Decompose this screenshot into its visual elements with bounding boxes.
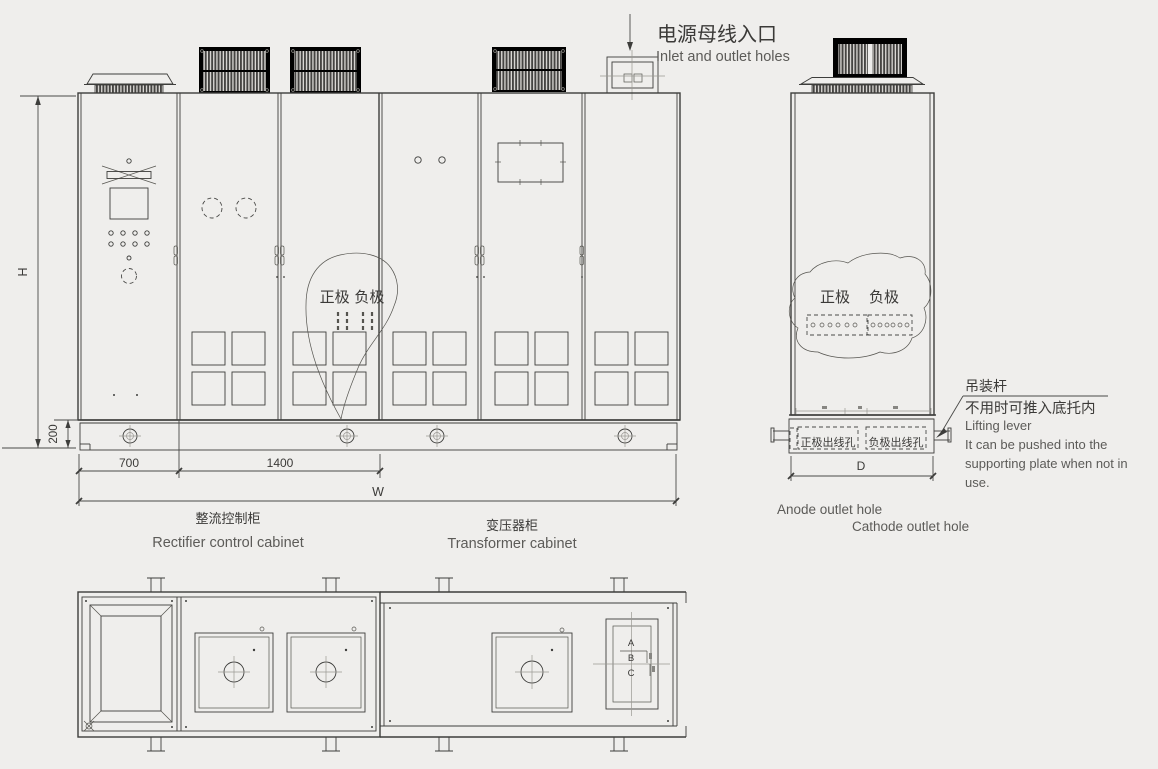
indicator-lights bbox=[109, 231, 149, 246]
terminal-strips bbox=[807, 315, 912, 335]
outlet-hole-captions: Anode outlet hole Cathode outlet hole bbox=[777, 502, 969, 534]
plan-fan-unit-1 bbox=[195, 627, 273, 712]
door4-hole bbox=[439, 157, 445, 163]
front-base bbox=[78, 420, 680, 450]
cathode-outlet-hole-label-zh: 负极出线孔 bbox=[869, 435, 924, 449]
plan-label-c: C bbox=[628, 668, 635, 679]
door4-hole bbox=[415, 157, 421, 163]
power-inlet-label-zh: 电源母线入口 bbox=[657, 22, 777, 46]
dim-depth-d: D bbox=[788, 456, 936, 481]
dim-base-200: 200 bbox=[48, 420, 80, 448]
emergency-button bbox=[122, 269, 137, 284]
gauge bbox=[202, 198, 222, 218]
plan-rectifier-section bbox=[78, 592, 380, 737]
anode-outlet-hole-label-en: Anode outlet hole bbox=[777, 502, 882, 517]
door2-gauges bbox=[202, 198, 256, 218]
side-base: 正极出线孔 负极出线孔 bbox=[771, 415, 951, 453]
plan-view: A B C bbox=[78, 578, 686, 751]
door5-access-panel bbox=[495, 140, 566, 185]
technical-drawing-page: 电源母线入口 Inlet and outlet holes bbox=[0, 0, 1158, 769]
power-inlet-label-en: Inlet and outlet holes bbox=[656, 49, 790, 65]
plan-inlet-hole: A B C bbox=[593, 612, 670, 716]
drawing-canvas: 电源母线入口 Inlet and outlet holes bbox=[0, 0, 1158, 769]
leader-arrow-icon bbox=[936, 428, 947, 438]
rectifier-caption-en: Rectifier control cabinet bbox=[152, 535, 304, 551]
small-button bbox=[127, 256, 131, 260]
front-roof-fan-3 bbox=[492, 47, 566, 92]
front-roof-fan-2 bbox=[290, 47, 361, 93]
plan-fan-unit-2 bbox=[287, 627, 365, 712]
plan-control-frame bbox=[90, 605, 172, 722]
down-arrow-icon bbox=[627, 42, 633, 51]
display-panel bbox=[110, 188, 148, 219]
side-roof bbox=[799, 38, 925, 93]
cabinet-captions: 整流控制柜 Rectifier control cabinet 变压器柜 Tra… bbox=[152, 512, 576, 552]
transformer-caption-zh: 变压器柜 bbox=[486, 518, 538, 534]
rectifier-caption-zh: 整流控制柜 bbox=[195, 512, 260, 527]
front-roof-vent-hood bbox=[84, 74, 176, 93]
base-lifting-holes bbox=[119, 425, 636, 447]
dim-200-label: 200 bbox=[48, 424, 60, 443]
dim-height-h: H bbox=[2, 96, 76, 448]
lifting-lever-note-en-2: supporting plate when not in bbox=[965, 456, 1128, 471]
indicator-lamp bbox=[127, 159, 131, 163]
side-cathode-label: 负极 bbox=[869, 288, 899, 306]
lifting-lever-note-en-1: It can be pushed into the bbox=[965, 437, 1107, 452]
control-door-panel bbox=[102, 159, 156, 396]
plan-datum-mark bbox=[84, 721, 94, 731]
front-polarity-label: 正极 负极 bbox=[320, 288, 385, 306]
front-view: 电源母线入口 Inlet and outlet holes bbox=[2, 14, 790, 552]
dim-h-label: H bbox=[16, 267, 30, 276]
side-anode-label: 正极 bbox=[820, 288, 850, 306]
dim-widths: 700 1400 W bbox=[76, 420, 679, 506]
front-cabinet-body bbox=[78, 93, 680, 420]
plan-label-b: B bbox=[628, 653, 634, 664]
front-roof-fan-1 bbox=[199, 47, 270, 93]
plan-label-a: A bbox=[628, 638, 635, 649]
side-micro-dims bbox=[796, 406, 931, 414]
louver-grids bbox=[192, 332, 668, 405]
lifting-lever-note-en-3: use. bbox=[965, 475, 990, 490]
transformer-caption-en: Transformer cabinet bbox=[447, 536, 576, 552]
front-cable-zone: 正极 负极 bbox=[306, 253, 398, 419]
lifting-lever-label-zh: 吊装杆 bbox=[965, 379, 1007, 395]
cathode-outlet-hole-label-en: Cathode outlet hole bbox=[852, 519, 969, 534]
dim-700-label: 700 bbox=[119, 456, 139, 470]
side-cable-zone: 正极 负极 bbox=[789, 253, 931, 358]
plan-corner-dots bbox=[85, 600, 669, 728]
side-view: 正极 负极 bbox=[771, 38, 1128, 534]
lifting-lever-label-en: Lifting lever bbox=[965, 418, 1032, 433]
lifting-lug-tabs bbox=[147, 578, 628, 751]
side-body bbox=[791, 93, 934, 415]
plan-fan-unit-3 bbox=[492, 628, 572, 712]
dim-1400-label: 1400 bbox=[267, 456, 294, 470]
dim-w-label: W bbox=[372, 485, 384, 499]
anode-outlet-hole-label-zh: 正极出线孔 bbox=[801, 435, 856, 449]
plan-transformer-section: A B C bbox=[380, 592, 686, 737]
gauge bbox=[236, 198, 256, 218]
lifting-lever-note-zh: 不用时可推入底托内 bbox=[965, 400, 1096, 417]
dim-d-label: D bbox=[857, 459, 866, 473]
lifting-lever-note: 吊装杆 不用时可推入底托内 Lifting lever It can be pu… bbox=[936, 379, 1128, 490]
